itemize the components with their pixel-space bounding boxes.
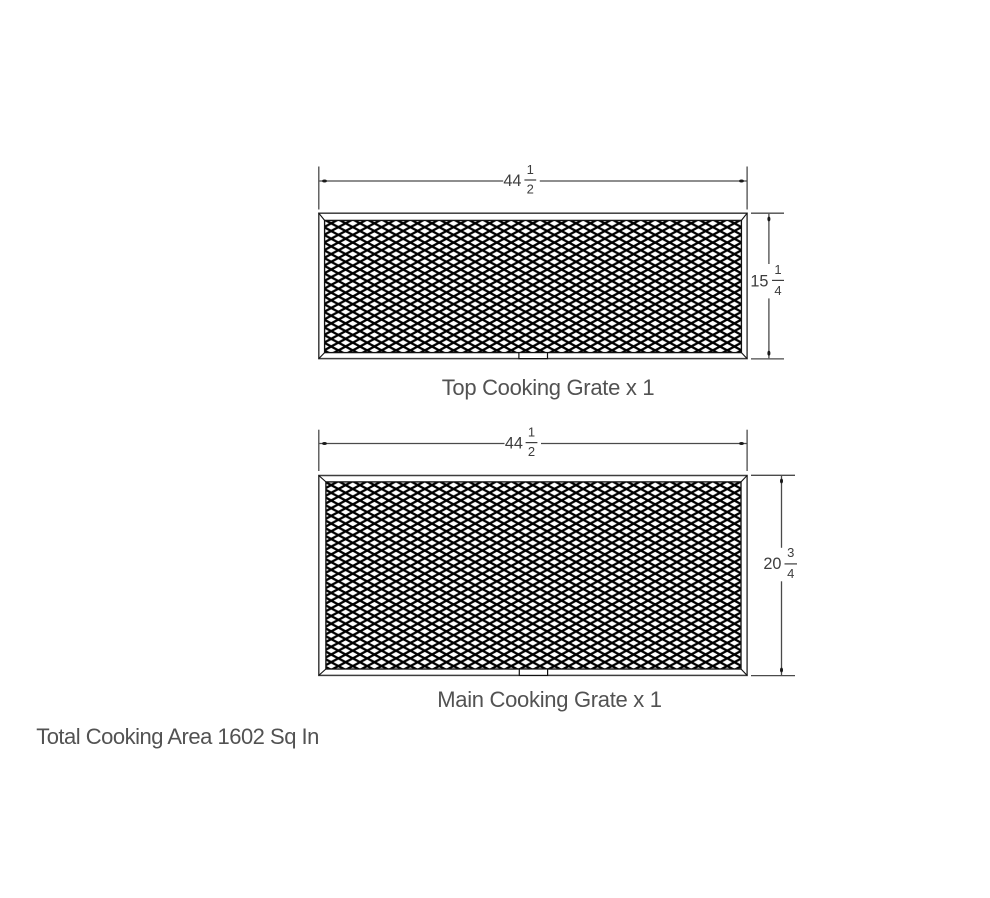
svg-text:3: 3 [787,545,794,560]
svg-text:44: 44 [505,435,523,453]
svg-text:2: 2 [528,444,535,459]
svg-text:1: 1 [527,162,534,177]
svg-text:Top Cooking Grate x 1: Top Cooking Grate x 1 [442,375,655,400]
svg-text:Main Cooking Grate x 1: Main Cooking Grate x 1 [437,687,662,712]
svg-text:15: 15 [750,273,768,291]
svg-text:4: 4 [774,283,781,298]
svg-text:Total Cooking Area 1602 Sq In: Total Cooking Area 1602 Sq In [36,724,319,749]
svg-text:1: 1 [774,262,781,277]
svg-text:4: 4 [787,566,794,581]
svg-text:1: 1 [528,425,535,440]
svg-text:20: 20 [763,555,781,573]
svg-text:44: 44 [503,172,521,190]
svg-text:2: 2 [527,181,534,196]
